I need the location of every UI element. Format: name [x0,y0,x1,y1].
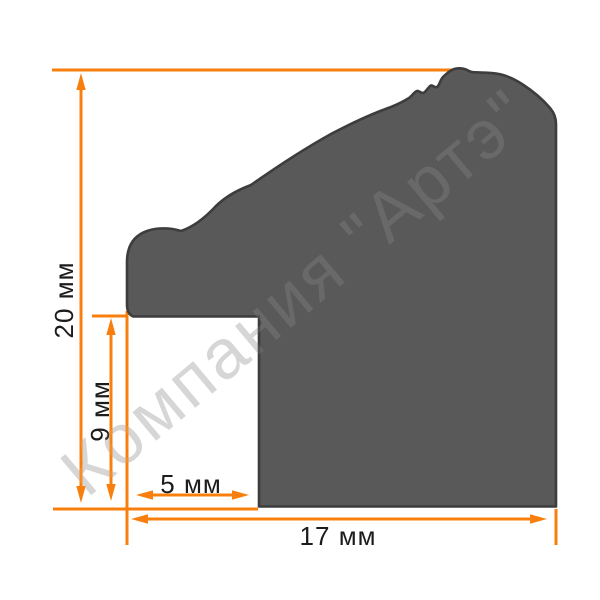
arrowhead-20mm-up-icon [76,73,85,90]
arrowhead-9mm-up-icon [106,318,115,335]
arrowhead-5mm-left-icon [136,490,153,499]
dimension-label-17mm: 17 мм [300,521,377,551]
arrowhead-17mm-left-icon [131,514,148,523]
moulding-profile-diagram: Компания "Артэ" 20 мм 9 мм 5 мм [0,0,600,600]
diagram-canvas: Компания "Артэ" 20 мм 9 мм 5 мм [0,0,600,600]
dimension-rabbet-width: 5 мм [136,469,249,500]
arrowhead-5mm-right-icon [232,490,249,499]
arrowhead-17mm-right-icon [530,514,547,523]
dimension-label-20mm: 20 мм [49,262,79,339]
dimension-overall-width: 17 мм [131,514,547,551]
dimension-label-5mm: 5 мм [160,469,221,499]
